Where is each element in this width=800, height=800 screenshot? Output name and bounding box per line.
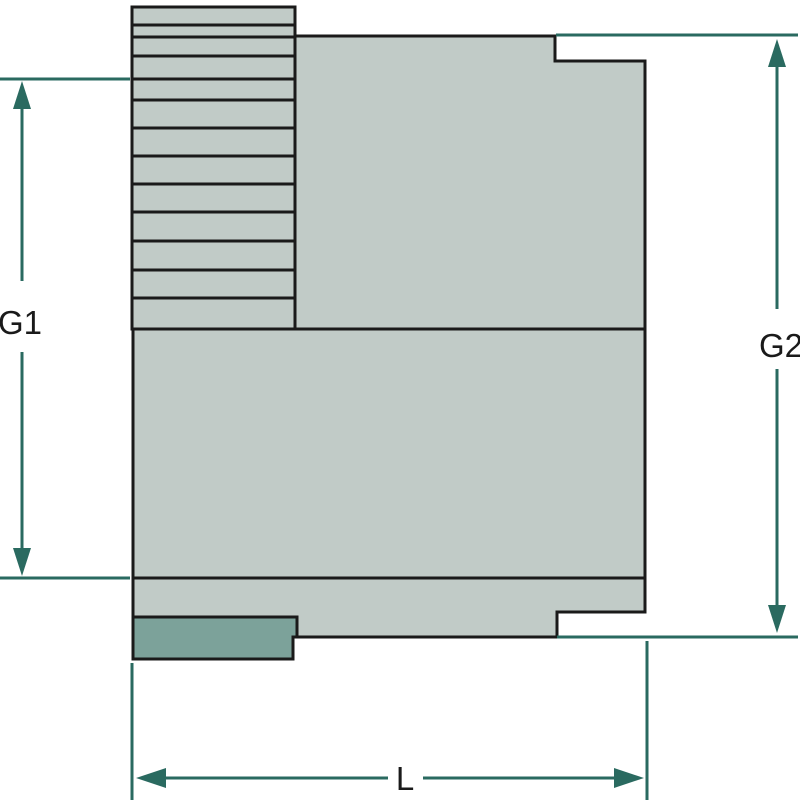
body-upper-block <box>295 36 645 329</box>
dimension-l: L <box>132 641 647 800</box>
l-arrow-left-icon <box>136 768 166 788</box>
fitting-body <box>132 7 645 659</box>
l-arrow-right-icon <box>614 768 644 788</box>
g1-arrow-down-icon <box>13 548 31 576</box>
collar-block <box>133 617 297 659</box>
g2-arrow-up-icon <box>768 39 786 67</box>
g2-label: G2 <box>759 327 800 364</box>
dimension-g1: G1 <box>0 79 130 578</box>
g2-arrow-down-icon <box>768 605 786 633</box>
body-middle-block <box>133 329 645 578</box>
l-label: L <box>396 760 414 797</box>
technical-drawing-canvas: G1 G2 L <box>0 0 800 800</box>
g1-label: G1 <box>0 304 42 341</box>
g1-arrow-up-icon <box>13 81 31 109</box>
fitting-section-drawing: G1 G2 L <box>0 0 800 800</box>
